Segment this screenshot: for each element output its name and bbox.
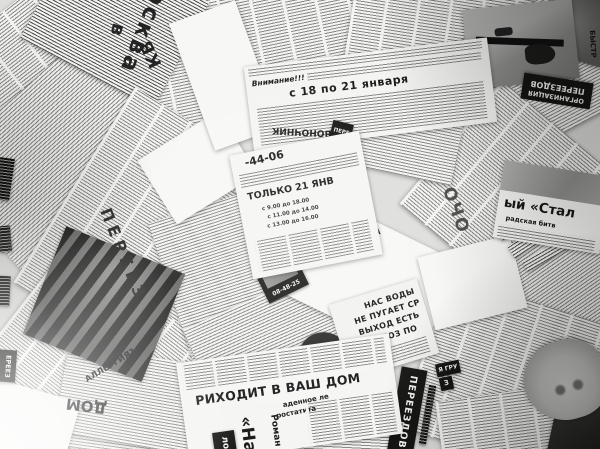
lo-chip: ло — [212, 430, 237, 449]
rifle-barrel — [476, 37, 564, 47]
chip-line: ЕРЕЕЗ — [2, 354, 11, 377]
rifle-scope — [494, 27, 513, 37]
chip-line: ло — [218, 435, 230, 449]
cargo-chip: З — [439, 376, 454, 391]
edge-chip — [0, 225, 12, 252]
chip-line: Я ГРУ — [438, 363, 459, 374]
na-vertical-headline: «На — [236, 415, 258, 449]
only21-clipping: -44-06 ТОЛЬКО 21 ЯНВ с 9.00 до 18.00 с 1… — [229, 131, 383, 280]
newspaper-collage: осква в КВ Внимание!!! с 18 по 21 января… — [0, 0, 600, 449]
dom-headline: ДОМ — [65, 396, 108, 416]
chip-line: З — [443, 379, 450, 388]
headline-bystr: БЫСТР — [588, 30, 596, 58]
edge-chip — [0, 276, 11, 307]
ereez-edge-chip: ЕРЕЕЗ — [0, 349, 17, 382]
